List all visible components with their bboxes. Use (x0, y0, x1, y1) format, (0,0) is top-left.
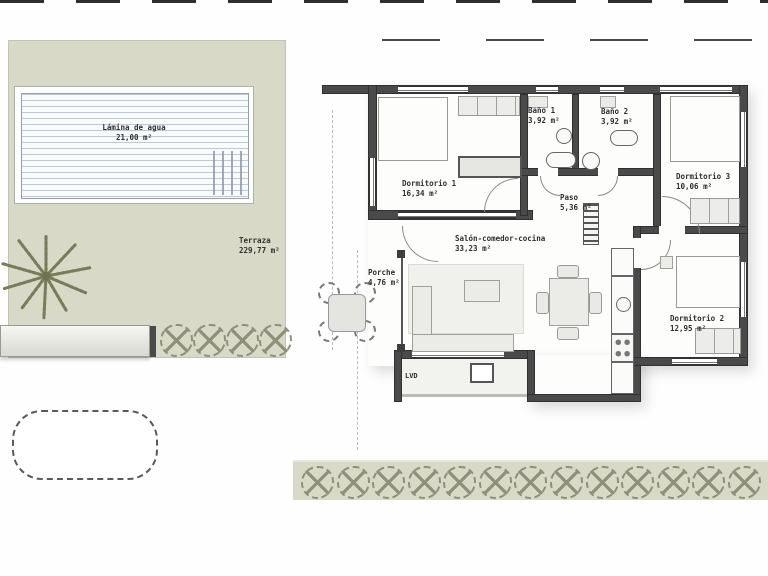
garden-wall-post (150, 326, 156, 357)
car-parking-outline (12, 410, 158, 480)
toilet-bath2 (582, 152, 600, 170)
room-area: 3,92 m² (528, 116, 560, 126)
plot-boundary-line (0, 0, 768, 3)
room-area: 5,36 m² (560, 203, 592, 213)
shrub-icon (657, 466, 690, 499)
shrub-icon (550, 466, 583, 499)
shrub-icon (193, 324, 226, 357)
room-area: 21,00 m² (44, 133, 224, 143)
wardrobe-dorm3 (690, 198, 740, 224)
porch-edge-line (401, 252, 403, 352)
utility-text: LVD (405, 372, 418, 381)
shrub-icon (337, 466, 370, 499)
sofa (412, 334, 514, 352)
pool-steps (213, 151, 247, 195)
dresser-dorm1 (458, 156, 522, 178)
room-label-bano1: Baño 1 3,92 m² (528, 106, 560, 126)
dining-chair (557, 327, 579, 340)
room-area: 33,23 m² (455, 244, 545, 254)
shrub-icon (160, 324, 193, 357)
room-label-porche: Porche 4,76 m² (368, 268, 400, 288)
porch-post (397, 250, 405, 258)
room-area: 4,76 m² (368, 278, 400, 288)
window-dorm3-north (660, 85, 732, 94)
utility-deck (402, 359, 527, 397)
shrub-icon (479, 466, 512, 499)
room-name: Dormitorio 2 (670, 314, 724, 324)
room-label-terraza: Terraza 229,77 m² (239, 236, 280, 256)
kitchen-stove (611, 334, 634, 362)
shrub-icon (259, 324, 292, 357)
porch-post (397, 344, 405, 352)
shrub-icon (408, 466, 441, 499)
room-label-dormitorio3: Dormitorio 3 10,06 m² (676, 172, 730, 192)
dining-table (549, 278, 589, 326)
wall-kitchen-south (527, 394, 641, 402)
shrub-icon (621, 466, 654, 499)
kitchen-counter (611, 276, 634, 334)
paving-guide-line (357, 250, 358, 450)
bed-dorm2 (676, 256, 740, 308)
bathtub-bath1 (546, 152, 576, 168)
door-gap-dorm2 (633, 238, 641, 268)
room-area: 16,34 m² (402, 189, 456, 199)
kitchen-cabinet-lower (611, 362, 634, 394)
room-area: 3,92 m² (601, 117, 633, 127)
shrub-icon (443, 466, 476, 499)
plot-boundary-line-2 (382, 39, 768, 41)
nightstand-dorm2 (660, 256, 673, 269)
garden-wall (0, 325, 150, 357)
window-dorm2-south (672, 357, 717, 366)
room-name: Salón-comedor-cocina (455, 234, 545, 244)
shrub-icon (226, 324, 259, 357)
toilet-bath1 (556, 128, 572, 144)
dining-chair (557, 265, 579, 278)
room-area: 229,77 m² (239, 246, 280, 256)
patio-table (328, 294, 366, 332)
room-label-lamina-de-agua: Lámina de agua 21,00 m² (44, 123, 224, 143)
room-label-paso: Paso 5,36 m² (560, 193, 592, 213)
window-dorm2-east (739, 262, 748, 317)
door-gap-bath1 (538, 168, 558, 176)
room-area: 12,95 m² (670, 324, 724, 334)
bed-dorm3 (670, 96, 740, 162)
shrub-icon (301, 466, 334, 499)
shrub-row-left (160, 324, 288, 354)
utility-label: LVD (405, 372, 418, 381)
wardrobe-dorm1 (458, 96, 520, 116)
shrub-icon (372, 466, 405, 499)
room-name: Paso (560, 193, 592, 203)
room-name: Baño 1 (528, 106, 560, 116)
swimming-pool (14, 86, 254, 204)
kitchen-sink (616, 297, 631, 312)
dining-chair (536, 292, 549, 314)
shrub-icon (586, 466, 619, 499)
window-bath2 (600, 85, 624, 94)
floor-plan-canvas: Lámina de agua 21,00 m² Terraza 229,77 m… (0, 0, 768, 576)
washing-machine (470, 363, 494, 383)
shrub-row-bottom (301, 466, 761, 496)
room-name: Porche (368, 268, 400, 278)
wall-utility-left (394, 350, 402, 402)
shrub-icon (692, 466, 725, 499)
window-dorm3-east (739, 112, 748, 167)
door-gap-bath2 (598, 168, 618, 176)
room-label-dormitorio1: Dormitorio 1 16,34 m² (402, 179, 456, 199)
wall-bath2-dorm3 (653, 94, 661, 234)
kitchen-cabinet (611, 248, 634, 276)
room-name: Terraza (239, 236, 280, 246)
wardrobe-front-dorm1 (398, 211, 516, 219)
room-area: 10,06 m² (676, 182, 730, 192)
room-label-salon: Salón-comedor-cocina 33,23 m² (455, 234, 545, 254)
window-dorm1-west (368, 158, 377, 206)
room-label-bano2: Baño 2 3,92 m² (601, 107, 633, 127)
room-name: Lámina de agua (44, 123, 224, 133)
room-name: Dormitorio 3 (676, 172, 730, 182)
wall-dorm1-bath (520, 94, 528, 216)
window-dorm1-north (398, 85, 468, 94)
bathtub-bath2 (610, 130, 638, 146)
dining-chair (589, 292, 602, 314)
palm-tree-icon (0, 222, 98, 326)
coffee-table (464, 280, 500, 302)
shrub-icon (728, 466, 761, 499)
room-name: Dormitorio 1 (402, 179, 456, 189)
shrub-icon (514, 466, 547, 499)
window-bath1 (536, 85, 558, 94)
bed-dorm1 (378, 97, 448, 161)
room-label-dormitorio2: Dormitorio 2 12,95 m² (670, 314, 724, 334)
room-name: Baño 2 (601, 107, 633, 117)
garden-strip-bottom (293, 460, 768, 500)
